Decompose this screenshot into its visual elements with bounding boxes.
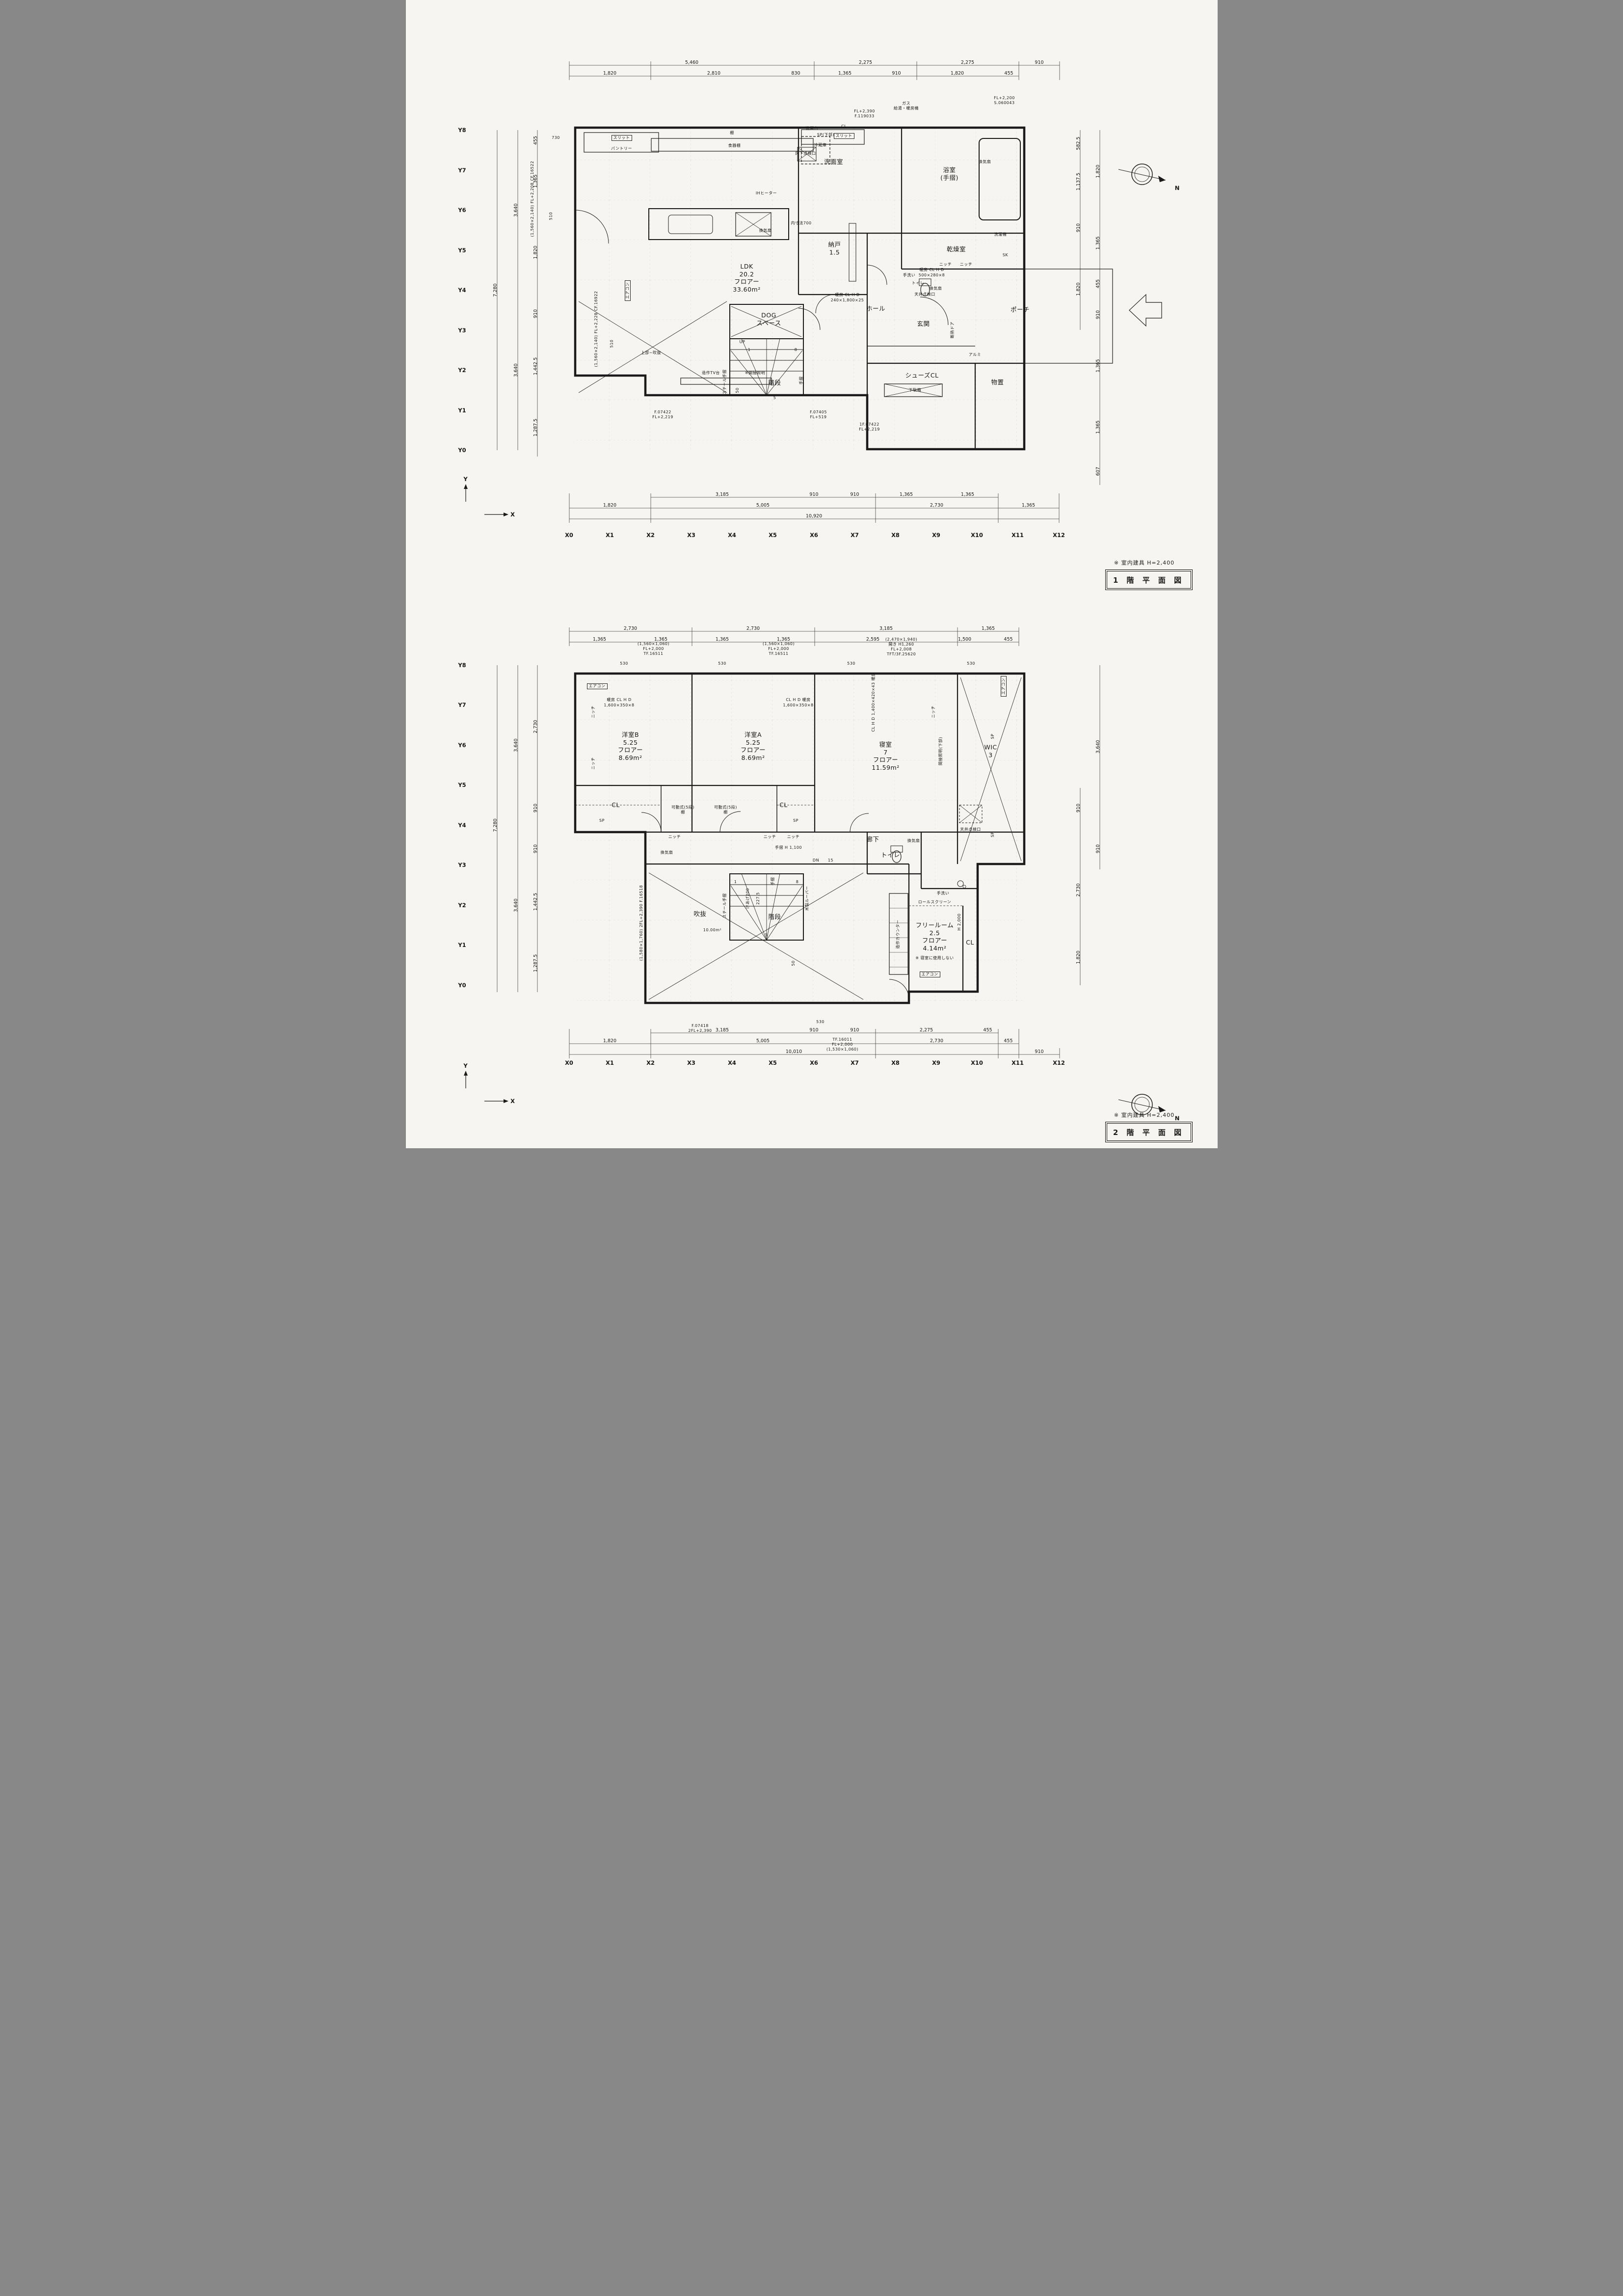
floor1-label: 断熱ドア xyxy=(950,322,955,338)
floor2-label: CL H D 1,400×420×43 暖房 xyxy=(871,672,876,731)
floor2-label: 可動式(5段) 棚 xyxy=(671,805,694,815)
floor1-label: F.07422 FL+2,219 xyxy=(652,410,673,420)
floor1-label: 手摺 xyxy=(799,377,804,385)
floor1-label: X0 xyxy=(565,532,573,539)
floor1-label: Y5 xyxy=(458,247,466,254)
floor1-label: ※間接照明 xyxy=(745,371,765,376)
floor1-label: Y7 xyxy=(458,167,466,174)
floor2-label: 910 xyxy=(1035,1049,1043,1055)
floor2-label: X4 xyxy=(728,1059,736,1066)
floor2-label: 可動式(5段) 棚 xyxy=(714,805,737,815)
floor2-label: X1 xyxy=(606,1059,614,1066)
floor1-label: 1,365 xyxy=(900,492,913,498)
floor1-label: 1,820 xyxy=(1076,282,1082,296)
floor1-label: 納戸 1.5 xyxy=(828,241,841,256)
floor1-label: 2,810 xyxy=(707,71,720,77)
floor2-label: X2 xyxy=(646,1059,655,1066)
floor1-label: 上部~吹抜 xyxy=(641,351,661,355)
floor1-label: X9 xyxy=(932,532,940,539)
floor2-label: SP xyxy=(599,818,605,823)
floor2-label: (1,560×1,060) FL+2,000 TF.16511 xyxy=(763,642,795,656)
floor1-label: 1,365 xyxy=(961,492,974,498)
floor2-label: スチール手摺 xyxy=(722,893,727,918)
floor2-label: Y2 xyxy=(458,902,466,909)
floor1-label: ポーチ xyxy=(1011,306,1030,314)
floor1-label: 1,365 xyxy=(1095,359,1101,372)
floor1-label: 物置 xyxy=(991,378,1004,386)
floor2-label: SP xyxy=(990,734,995,739)
floor1-label: 7,280 xyxy=(493,283,499,297)
floor1-label: F.07405 FL+519 xyxy=(810,410,827,420)
floor1-label: 5,460 xyxy=(685,60,698,66)
floor1-label: 910 xyxy=(809,492,818,498)
floor1-label: Y0 xyxy=(458,447,466,454)
floor2-label: CL H D 暖房 xyxy=(786,698,810,702)
floor2-label: けあげ200 xyxy=(745,888,750,909)
floor1-label: Y6 xyxy=(458,207,466,214)
floor1-label: 8 xyxy=(795,348,798,352)
floor2-label: 530 xyxy=(718,661,726,666)
floor1-label: トイレ xyxy=(912,281,925,286)
floor1-label: 830 xyxy=(791,71,800,77)
floor2-label: X8 xyxy=(891,1059,900,1066)
floor2-label: 910 xyxy=(1095,844,1101,853)
floor2-label: TF.16011 FL+2,000 (1,530×1,060) xyxy=(826,1037,858,1052)
floor2-label: 910 xyxy=(850,1027,859,1033)
floor2-label: CL xyxy=(779,801,788,809)
floor1-label: 5 xyxy=(773,396,776,401)
floor2-label: (1,580×1,760) 2FL+2,390 F.16518 xyxy=(639,885,644,961)
floor1-label: 暖房 CL H D xyxy=(919,268,944,272)
floor1-label: 食器棚 xyxy=(728,143,741,148)
floor1-label: 1,442.5 xyxy=(533,357,539,375)
floor1-label: (1,560×2,140) FL+2,228 CF.16922 xyxy=(594,291,599,367)
floor2-label: ニッチ xyxy=(787,835,800,839)
floor2-title-block: 2 階 平 面 図 xyxy=(1107,1123,1191,1141)
floor2-label: 1,442.5 xyxy=(533,893,539,911)
floor2-label: 2,730 xyxy=(1076,883,1082,896)
floor2-label: エアコン xyxy=(587,683,608,689)
floor2-label: 暖房 CL H D xyxy=(607,698,631,702)
floor2-label: 間接照明(下部) xyxy=(938,737,943,765)
floor1-label: 910 xyxy=(892,71,901,77)
floor1-label: 洗面室 xyxy=(824,158,843,166)
floor2-label: ニッチ xyxy=(591,705,596,718)
floor1-label: ニッチ xyxy=(939,262,952,267)
floor2-label: DN xyxy=(813,858,819,863)
floor1-label: DOG スペース xyxy=(756,311,781,326)
floor1-label: 天井点検口 xyxy=(914,292,935,297)
floor1-furniture-note: ※ 室内建具 H=2,400 xyxy=(1114,559,1174,567)
floor2-label: 455 xyxy=(983,1027,992,1033)
floor2-label: 洋室A 5.25 フロアー 8.69m² xyxy=(741,731,766,762)
floor2-label: 天井点検口 xyxy=(960,827,981,832)
floor2-label: 8 xyxy=(796,880,799,885)
floor1-label: UP xyxy=(740,340,745,345)
floor2-label: 1,820 xyxy=(1076,950,1082,964)
floor1-title: 1 階 平 面 図 xyxy=(1113,575,1184,585)
floor1-label: 500×280×8 xyxy=(919,273,945,278)
floor2-label: 1,600×350×8 xyxy=(604,703,634,708)
floor2-label: X5 xyxy=(769,1059,777,1066)
floor1-label: 洗面台 xyxy=(806,126,819,131)
floor2-label: SP xyxy=(990,832,995,837)
floor1-label: スリット xyxy=(834,133,854,139)
floor1-label: 1,820 xyxy=(951,71,964,77)
floor1-label: ニッチ xyxy=(960,262,973,267)
floor2-label: 1,287.5 xyxy=(533,954,539,972)
floor1-label: 1F.07422 FL+2,219 xyxy=(859,422,880,432)
floor1-label: 910 xyxy=(1076,223,1082,232)
floor1-label: 棚 xyxy=(730,131,734,135)
floor2-label: 1,820 xyxy=(603,1038,616,1044)
floor2-label: 5,005 xyxy=(756,1038,770,1044)
floor2-label: X xyxy=(510,1098,515,1105)
floor2-label: Y7 xyxy=(458,702,466,708)
floor1-label: IHヒーター xyxy=(756,191,777,196)
floor1-label: 冷蔵庫 xyxy=(814,143,827,148)
floor2-label: (1,560×1,060) FL+2,000 TF.16511 xyxy=(638,642,669,656)
floor2-label: 1,365 xyxy=(982,626,995,632)
floor1-label: Y8 xyxy=(458,127,466,134)
floor1-label: FL+2,200 S.060043 xyxy=(994,96,1015,106)
plan-labels-layer: 5,4602,2752,2759101,8202,8108301,3659101… xyxy=(406,0,1218,1148)
floor2-label: 2,730 xyxy=(746,626,760,632)
floor2-label: CL xyxy=(612,801,620,809)
floor1-label: Y2 xyxy=(458,367,466,374)
floor2-label: 換気扇 xyxy=(661,850,673,855)
floor2-label: 3,185 xyxy=(879,626,893,632)
floor2-label: 1 xyxy=(734,880,737,885)
floor2-label: 吹抜 xyxy=(693,910,706,918)
floor2-label: H 2,000 xyxy=(957,914,962,931)
floor1-label: 50 xyxy=(735,387,740,393)
floor2-label: X6 xyxy=(810,1059,818,1066)
floor2-furniture-note: ※ 室内建具 H=2,400 xyxy=(1114,1111,1174,1119)
floor2-label: 2,730 xyxy=(624,626,637,632)
floor2-label: Y0 xyxy=(458,982,466,989)
floor2-label: 530 xyxy=(967,661,975,666)
floor1-label: 換気扇 xyxy=(930,286,942,291)
floor2-label: X3 xyxy=(687,1059,695,1066)
floor1-label: 455 xyxy=(533,136,539,145)
floor1-label: X12 xyxy=(1053,532,1065,539)
floor1-label: 浴室 (手摺) xyxy=(940,166,958,181)
floor2-label: 227.5 xyxy=(756,892,761,904)
floor2-label: 3,640 xyxy=(513,898,519,912)
floor1-label: 階段 xyxy=(768,379,781,387)
floor2-label: X10 xyxy=(971,1059,983,1066)
floor2-label: 7,280 xyxy=(493,818,499,832)
floor1-title-block: 1 階 平 面 図 xyxy=(1107,571,1191,589)
floor1-label: X11 xyxy=(1011,532,1024,539)
floor1-label: 910 xyxy=(850,492,859,498)
floor1-label: X7 xyxy=(851,532,859,539)
floor2-label: 910 xyxy=(533,844,539,853)
floor2-label: ニッチ xyxy=(931,705,936,718)
floor1-label: ガス 給湯・暖房機 xyxy=(894,101,919,111)
floor2-label: 木製ルーバー xyxy=(805,886,810,911)
floor1-label: FL+2,390 F.119033 xyxy=(854,109,875,119)
floor1-label: 玄関 xyxy=(917,320,930,328)
floor1-label: 5,005 xyxy=(756,503,770,509)
floor2-label: ※ 寝室に使用しない xyxy=(915,956,954,961)
floor2-label: 455 xyxy=(1004,1038,1012,1044)
floor2-label: X0 xyxy=(565,1059,573,1066)
floor2-label: 造作カウンター xyxy=(896,919,901,949)
floor1-label: エアコン xyxy=(625,280,631,301)
floor2-label: Y5 xyxy=(458,782,466,788)
floor2-label: ニッチ xyxy=(764,835,776,839)
floor2-label: 1,600×350×8 xyxy=(783,703,813,708)
floor2-label: 2,275 xyxy=(920,1027,933,1033)
floor1-label: 1,137.5 xyxy=(1076,173,1082,190)
floor1-label: X6 xyxy=(810,532,818,539)
floor1-label: 1,820 xyxy=(533,245,539,259)
floor1-label: 1,820 xyxy=(603,71,616,77)
floor2-label: 910 xyxy=(1076,804,1082,812)
floor1-label: X1 xyxy=(606,532,614,539)
floor2-label: 50 xyxy=(791,960,796,966)
floor1-label: X10 xyxy=(971,532,983,539)
floor2-label: X11 xyxy=(1011,1059,1024,1066)
floor1-label: 1,820 xyxy=(1095,164,1101,178)
floor1-label: 10,920 xyxy=(806,513,822,519)
floor1-label: (1,560×2,140) FL+2,208 CF.16522 xyxy=(530,161,535,237)
floor2-label: Y4 xyxy=(458,822,466,829)
floor2-label: 10.00m² xyxy=(703,928,721,933)
floor1-label: 910 xyxy=(533,309,539,318)
floor1-label: LDK 20.2 フロアー 33.60m² xyxy=(733,263,760,294)
floor1-label: X2 xyxy=(646,532,655,539)
floor2-label: F.07418 2FL+2,390 xyxy=(688,1024,712,1033)
floor1-label: 910 xyxy=(1095,310,1101,319)
floor1-label: CL xyxy=(841,124,847,129)
floor2-label: 10,010 xyxy=(786,1049,802,1055)
floor1-label: シューズCL xyxy=(905,372,938,379)
floor2-label: 455 xyxy=(1004,637,1012,643)
floor2-label: 洋室B 5.25 フロアー 8.69m² xyxy=(618,731,643,762)
floor1-label: ホール xyxy=(866,305,885,313)
floor2-label: ロールスクリーン xyxy=(918,900,952,905)
floor1-label: 1,287.5 xyxy=(533,419,539,436)
floor1-label: スチール手摺 xyxy=(722,370,727,395)
floor1-label: 乾燥室 xyxy=(947,245,966,253)
floor2-label: 530 xyxy=(847,661,855,666)
floor2-label: 1,500 xyxy=(958,637,971,643)
floor1-label: 床下点検口 xyxy=(795,151,816,156)
floor1-label: 3,640 xyxy=(513,363,519,377)
floor2-label: 3,640 xyxy=(1095,740,1101,753)
floor2-label: フリールーム 2.5 フロアー 4.14m² xyxy=(916,921,954,952)
floor2-label: WIC 3 xyxy=(984,743,997,758)
floor1-label: Y3 xyxy=(458,327,466,334)
floor1-label: 造作TV台 xyxy=(702,371,720,376)
floor1-label: SP(下部) xyxy=(817,133,834,137)
floor1-label: Y xyxy=(463,476,467,483)
floor2-label: ニッチ xyxy=(591,757,596,770)
floor2-label: SP xyxy=(793,818,798,823)
floor2-label: Y6 xyxy=(458,742,466,749)
floor1-label: 1,365 xyxy=(1095,236,1101,249)
floor1-label: X8 xyxy=(891,532,900,539)
floor1-label: 1,820 xyxy=(603,503,616,509)
floor2-title: 2 階 平 面 図 xyxy=(1113,1127,1184,1137)
floor1-label: 582.5 xyxy=(1076,136,1082,150)
floor2-label: 換気扇 xyxy=(907,838,920,843)
floor1-label: 3,640 xyxy=(513,203,519,216)
floor1-label: 730 xyxy=(552,135,560,140)
floor1-label: 455 xyxy=(1004,71,1013,77)
floor1-label: 1,365 xyxy=(1095,420,1101,433)
floor1-label: パントリー xyxy=(611,146,632,151)
floor1-label: SK xyxy=(1003,253,1008,258)
floor2-label: エアコン xyxy=(1001,676,1007,697)
floor2-label: 手洗い xyxy=(937,891,950,896)
floor2-label: X9 xyxy=(932,1059,940,1066)
floor1-label: 910 xyxy=(1035,60,1043,66)
floor2-label: Y8 xyxy=(458,662,466,669)
floor1-label: 2,275 xyxy=(859,60,872,66)
floor1-label: N xyxy=(1175,185,1180,191)
floor2-label: 2,595 xyxy=(866,637,879,643)
floor1-label: 1,365 xyxy=(838,71,851,77)
floor1-label: Y1 xyxy=(458,407,466,414)
floor2-label: X7 xyxy=(851,1059,859,1066)
floor2-label: X12 xyxy=(1053,1059,1065,1066)
floor2-label: 910 xyxy=(533,804,539,812)
floor1-label: 洗濯機 xyxy=(994,232,1007,237)
floor1-label: 手洗い xyxy=(903,273,916,278)
floor2-label: 手摺 xyxy=(771,877,775,886)
floor2-label: 廊下 xyxy=(866,836,879,843)
floor2-label: ニッチ xyxy=(668,835,681,839)
floor2-label: N xyxy=(1175,1115,1180,1122)
floor1-label: 3,185 xyxy=(716,492,729,498)
floor1-label: X xyxy=(510,511,515,518)
floor1-label: 607 xyxy=(1095,467,1101,476)
floor1-label: 1 xyxy=(748,348,751,352)
floor1-label: アルミ xyxy=(969,352,981,357)
floor1-label: 内寸法700 xyxy=(791,221,811,226)
floor1-label: 下駄箱 xyxy=(909,388,922,393)
drawing-sheet: 5,4602,2752,2759101,8202,8108301,3659101… xyxy=(406,0,1218,1148)
floor2-label: エアコン xyxy=(920,972,940,977)
floor2-label: 2,730 xyxy=(930,1038,943,1044)
floor1-label: 455 xyxy=(1095,279,1101,288)
floor2-label: CL xyxy=(966,939,974,946)
floor1-label: 510 xyxy=(610,340,614,348)
floor1-label: スリット xyxy=(612,135,632,141)
floor2-label: 2,730 xyxy=(533,720,539,733)
floor2-label: 530 xyxy=(816,1020,825,1025)
floor2-label: 1,365 xyxy=(593,637,606,643)
floor2-label: 3,185 xyxy=(716,1027,729,1033)
floor1-label: X4 xyxy=(728,532,736,539)
floor2-label: 5 xyxy=(765,933,768,938)
floor2-label: (2,470×1,940) 開き H1,260 FL+2,008 TFT/3F.… xyxy=(885,637,917,657)
floor1-label: X3 xyxy=(687,532,695,539)
floor1-label: 240×1,800×25 xyxy=(831,298,864,303)
floor2-label: 3,640 xyxy=(513,738,519,752)
floor1-label: 1,365 xyxy=(1022,503,1035,509)
floor1-label: 換気扇 xyxy=(759,228,772,233)
floor1-label: X5 xyxy=(769,532,777,539)
floor2-label: 15 xyxy=(828,858,833,863)
floor2-label: 手摺 H 1,100 xyxy=(775,845,802,850)
floor1-label: 換気扇 xyxy=(979,160,991,164)
floor2-label: Y xyxy=(463,1062,467,1069)
floor1-label: 2,275 xyxy=(961,60,974,66)
floor1-label: 510 xyxy=(549,212,554,220)
floor2-label: 530 xyxy=(620,661,628,666)
floor1-label: Y4 xyxy=(458,287,466,294)
floor2-label: 寝室 7 フロアー 11.59m² xyxy=(872,741,899,772)
floor2-label: Y3 xyxy=(458,862,466,868)
floor2-label: 910 xyxy=(809,1027,818,1033)
floor2-label: 階段 xyxy=(768,913,781,921)
floor2-label: 1,365 xyxy=(716,637,729,643)
floor2-label: トイレ xyxy=(881,851,900,859)
floor1-label: 2,730 xyxy=(930,503,943,509)
floor2-label: Y1 xyxy=(458,942,466,948)
floor1-label: 暖房 CL H D xyxy=(835,293,859,297)
